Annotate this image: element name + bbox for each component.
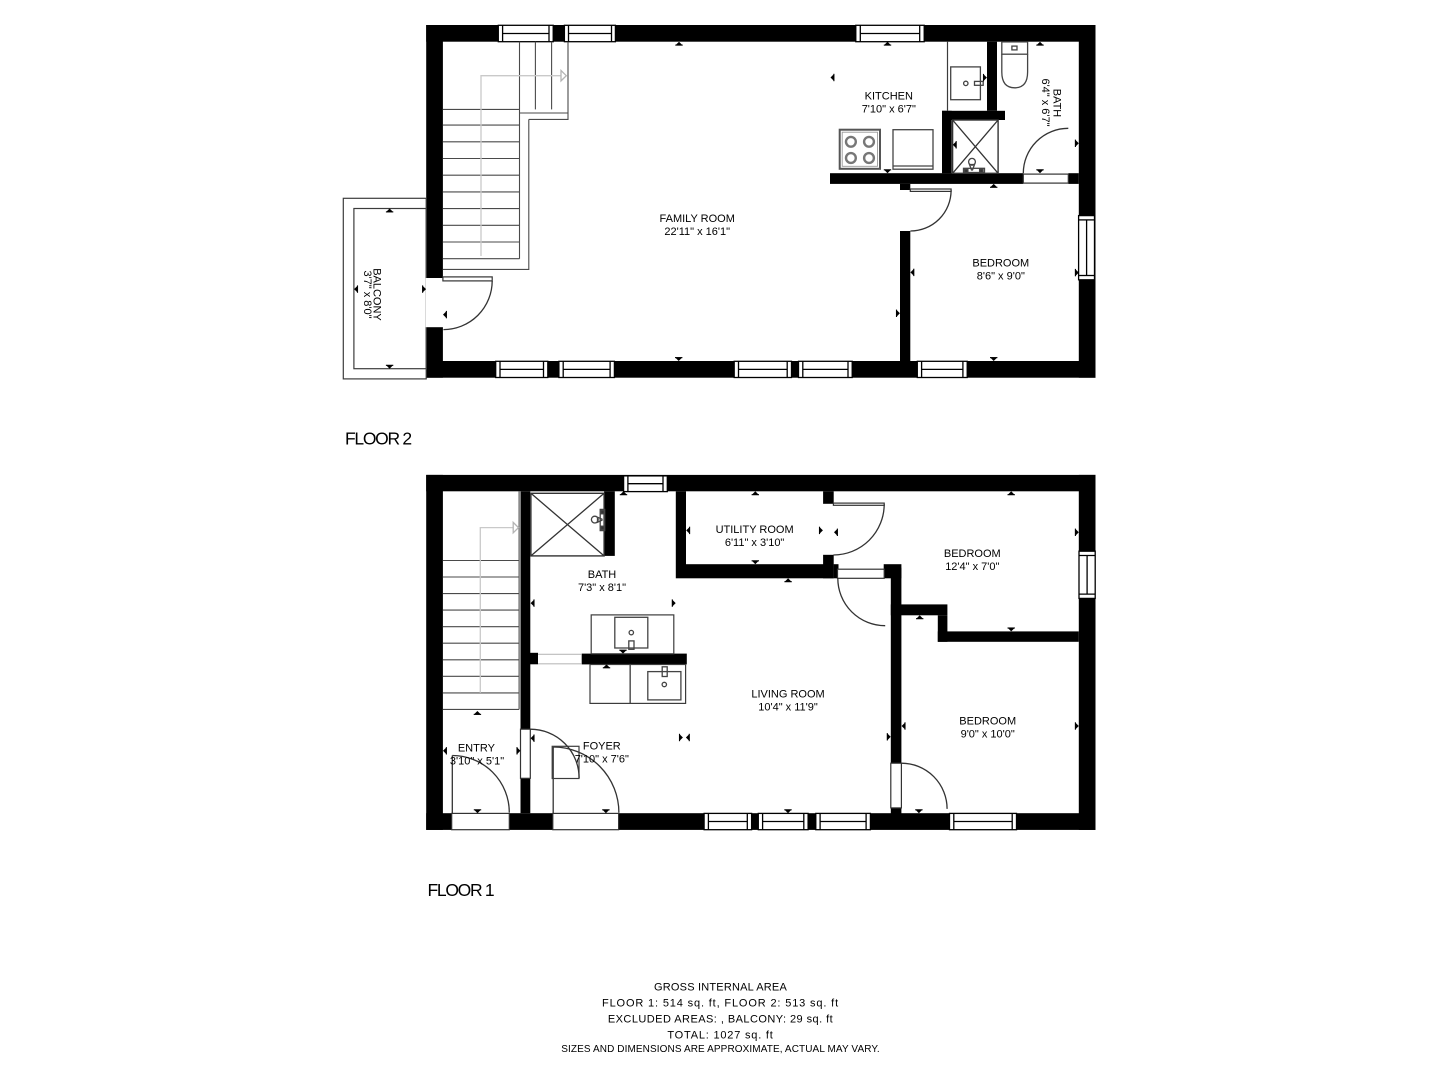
svg-text:FLOOR 1: 514 sq. ft, FLOOR 2:: FLOOR 1: 514 sq. ft, FLOOR 2: 513 sq. ft [602,998,839,1010]
svg-text:10'4" x 11'9": 10'4" x 11'9" [758,701,818,713]
svg-text:22'11" x 16'1": 22'11" x 16'1" [664,226,730,238]
svg-text:3'7" x 8'0": 3'7" x 8'0" [361,270,373,318]
svg-text:FLOOR 2: FLOOR 2 [345,429,411,449]
svg-text:9'0" x 10'0": 9'0" x 10'0" [961,729,1015,741]
svg-text:FAMILY ROOM: FAMILY ROOM [660,213,735,225]
svg-text:BATH: BATH [588,569,617,581]
svg-text:ENTRY: ENTRY [458,742,496,754]
svg-text:BEDROOM: BEDROOM [959,716,1016,728]
svg-text:6'11" x 3'10": 6'11" x 3'10" [725,537,785,549]
svg-text:12'4" x 7'0": 12'4" x 7'0" [945,561,999,573]
svg-text:EXCLUDED AREAS: , BALCONY: 29: EXCLUDED AREAS: , BALCONY: 29 sq. ft [608,1013,833,1025]
svg-text:7'3" x 8'1": 7'3" x 8'1" [578,582,626,594]
svg-text:KITCHEN: KITCHEN [865,91,913,103]
svg-text:8'6" x 9'0": 8'6" x 9'0" [977,270,1025,282]
svg-text:LIVING ROOM: LIVING ROOM [751,688,824,700]
svg-text:UTILITY ROOM: UTILITY ROOM [716,524,794,536]
svg-text:BEDROOM: BEDROOM [944,548,1001,560]
svg-text:FLOOR 1: FLOOR 1 [428,880,494,900]
svg-text:FOYER: FOYER [583,741,621,753]
svg-text:BATH: BATH [1051,89,1063,118]
svg-text:TOTAL: 1027 sq. ft: TOTAL: 1027 sq. ft [667,1029,773,1041]
svg-text:7'10" x 7'6": 7'10" x 7'6" [575,754,629,766]
svg-text:6'4" x 6'7": 6'4" x 6'7" [1039,78,1051,126]
svg-text:3'10" x 5'1": 3'10" x 5'1" [450,755,504,767]
svg-text:SIZES AND DIMENSIONS ARE APPRO: SIZES AND DIMENSIONS ARE APPROXIMATE, AC… [561,1044,879,1055]
svg-text:GROSS INTERNAL AREA: GROSS INTERNAL AREA [654,982,787,994]
svg-text:BEDROOM: BEDROOM [972,257,1029,269]
svg-text:7'10" x 6'7": 7'10" x 6'7" [862,104,916,116]
